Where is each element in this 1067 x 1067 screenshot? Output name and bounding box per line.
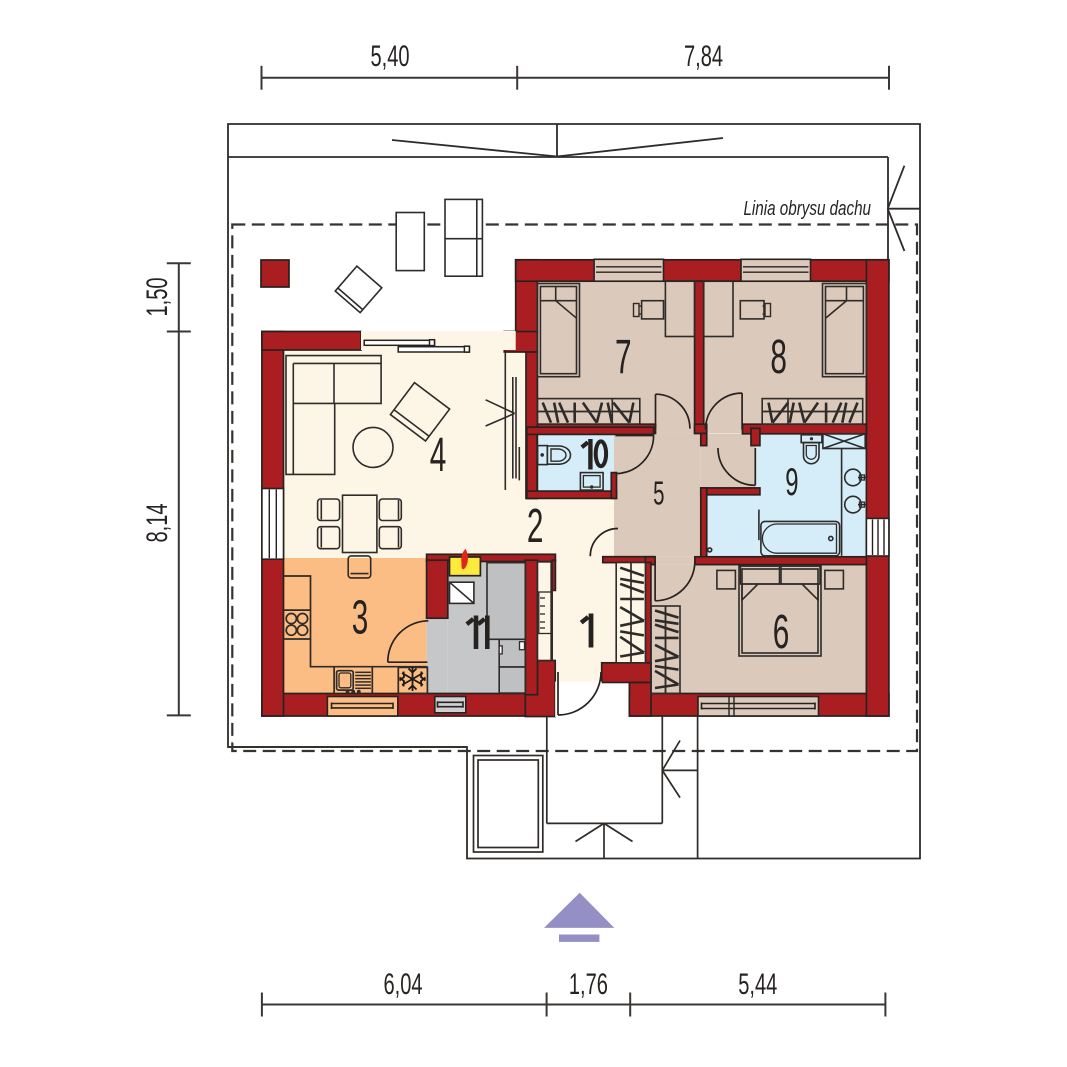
svg-text:2: 2 bbox=[527, 500, 544, 553]
svg-text:5: 5 bbox=[653, 474, 664, 511]
svg-text:Linia obrysu dachu: Linia obrysu dachu bbox=[743, 197, 871, 220]
svg-text:8: 8 bbox=[770, 331, 787, 384]
svg-text:1,76: 1,76 bbox=[569, 968, 608, 1001]
svg-text:7,84: 7,84 bbox=[684, 40, 723, 73]
svg-text:7: 7 bbox=[615, 331, 632, 384]
svg-text:5,44: 5,44 bbox=[738, 968, 777, 1001]
svg-text:8,14: 8,14 bbox=[141, 503, 174, 542]
svg-text:9: 9 bbox=[785, 460, 798, 503]
svg-text:5,40: 5,40 bbox=[370, 40, 409, 73]
svg-text:3: 3 bbox=[352, 591, 369, 644]
svg-text:1,50: 1,50 bbox=[141, 277, 174, 316]
svg-text:6: 6 bbox=[773, 606, 790, 659]
svg-text:4: 4 bbox=[430, 429, 447, 482]
svg-text:6,04: 6,04 bbox=[383, 968, 422, 1001]
